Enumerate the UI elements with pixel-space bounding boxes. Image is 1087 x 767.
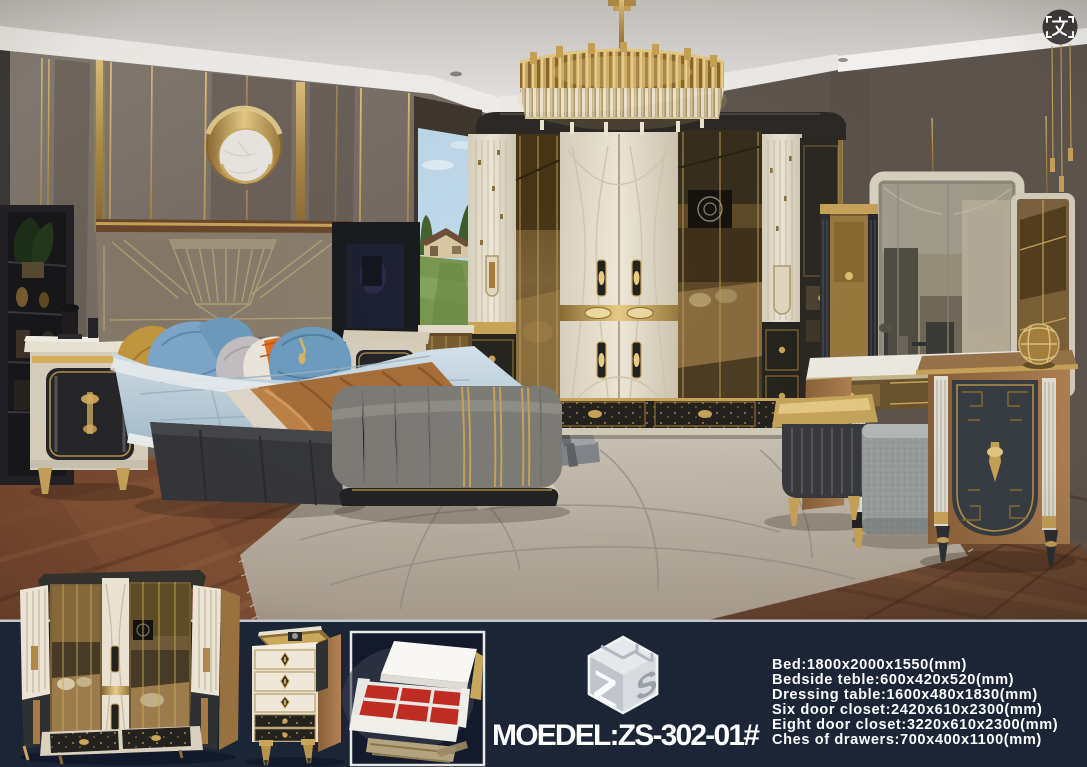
svg-text:Eight door closet:3220x610x230: Eight door closet:3220x610x2300(mm) (772, 717, 1058, 733)
svg-text:Six door closet:2420x610x2300(: Six door closet:2420x610x2300(mm) (772, 702, 1042, 718)
svg-text:Ches of drawers:700x400x1100(m: Ches of drawers:700x400x1100(mm) (772, 732, 1042, 748)
svg-text:Bedside teble:600x420x520(mm): Bedside teble:600x420x520(mm) (772, 672, 1014, 688)
svg-text:Dressing table:1600x480x1830(m: Dressing table:1600x480x1830(mm) (772, 687, 1038, 703)
svg-text:MOEDEL:ZS-302-01#: MOEDEL:ZS-302-01# (492, 719, 760, 752)
svg-text:Bed:1800x2000x1550(mm): Bed:1800x2000x1550(mm) (772, 657, 967, 673)
